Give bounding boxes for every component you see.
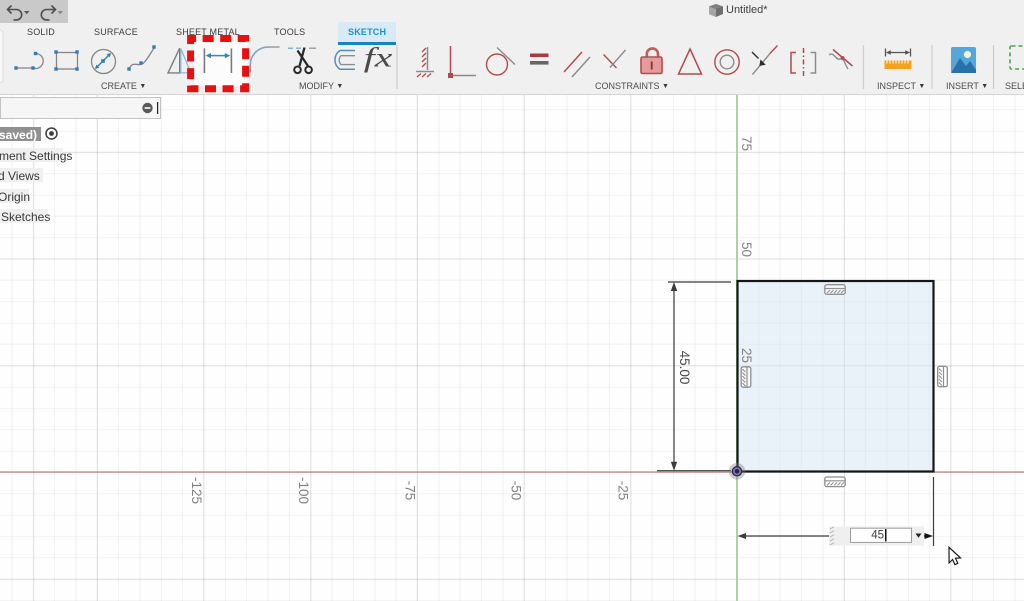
svg-text:fx: fx: [364, 43, 393, 73]
svg-text:45: 45: [871, 530, 884, 542]
svg-text:45.00: 45.00: [677, 351, 692, 385]
